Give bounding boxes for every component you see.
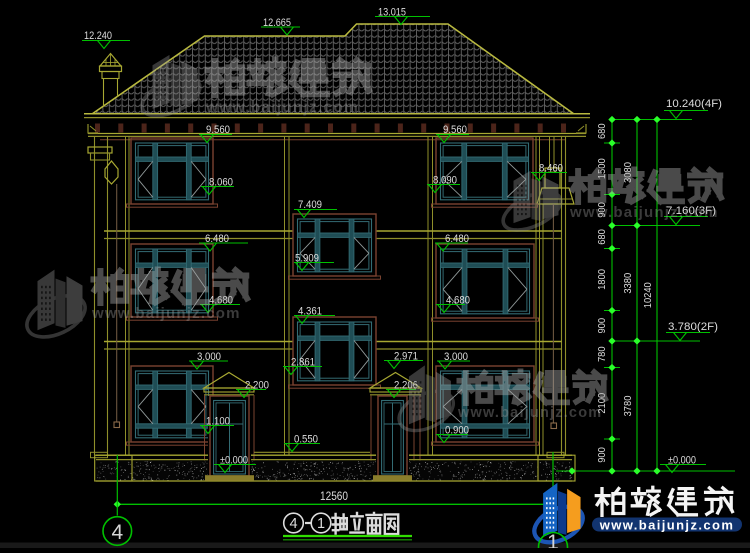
svg-text:680: 680 [597, 229, 608, 245]
svg-text:www.baijunjz.com: www.baijunjz.com [205, 99, 359, 116]
svg-text:1800: 1800 [597, 269, 608, 290]
svg-text:3380: 3380 [623, 272, 634, 293]
svg-text:10240: 10240 [643, 282, 654, 308]
svg-text:4: 4 [111, 521, 123, 544]
svg-text:1: 1 [547, 531, 559, 548]
svg-text:900: 900 [597, 318, 608, 334]
svg-text:10.240(4F): 10.240(4F) [666, 98, 722, 110]
svg-text:www.baijunjz.com: www.baijunjz.com [569, 204, 719, 221]
svg-text:www.baijunjz.com: www.baijunjz.com [91, 305, 241, 322]
svg-text:www.baijunjz.com: www.baijunjz.com [599, 518, 735, 533]
svg-text:www.baijunjz.com: www.baijunjz.com [457, 405, 602, 421]
svg-text:780: 780 [597, 346, 608, 362]
svg-text:680: 680 [597, 123, 608, 139]
svg-text:900: 900 [597, 447, 608, 463]
svg-text:3780: 3780 [623, 395, 634, 416]
svg-text:1: 1 [317, 516, 325, 532]
svg-text:4: 4 [289, 516, 297, 532]
svg-text:12560: 12560 [320, 491, 348, 503]
svg-text:3.780(2F): 3.780(2F) [668, 321, 718, 333]
